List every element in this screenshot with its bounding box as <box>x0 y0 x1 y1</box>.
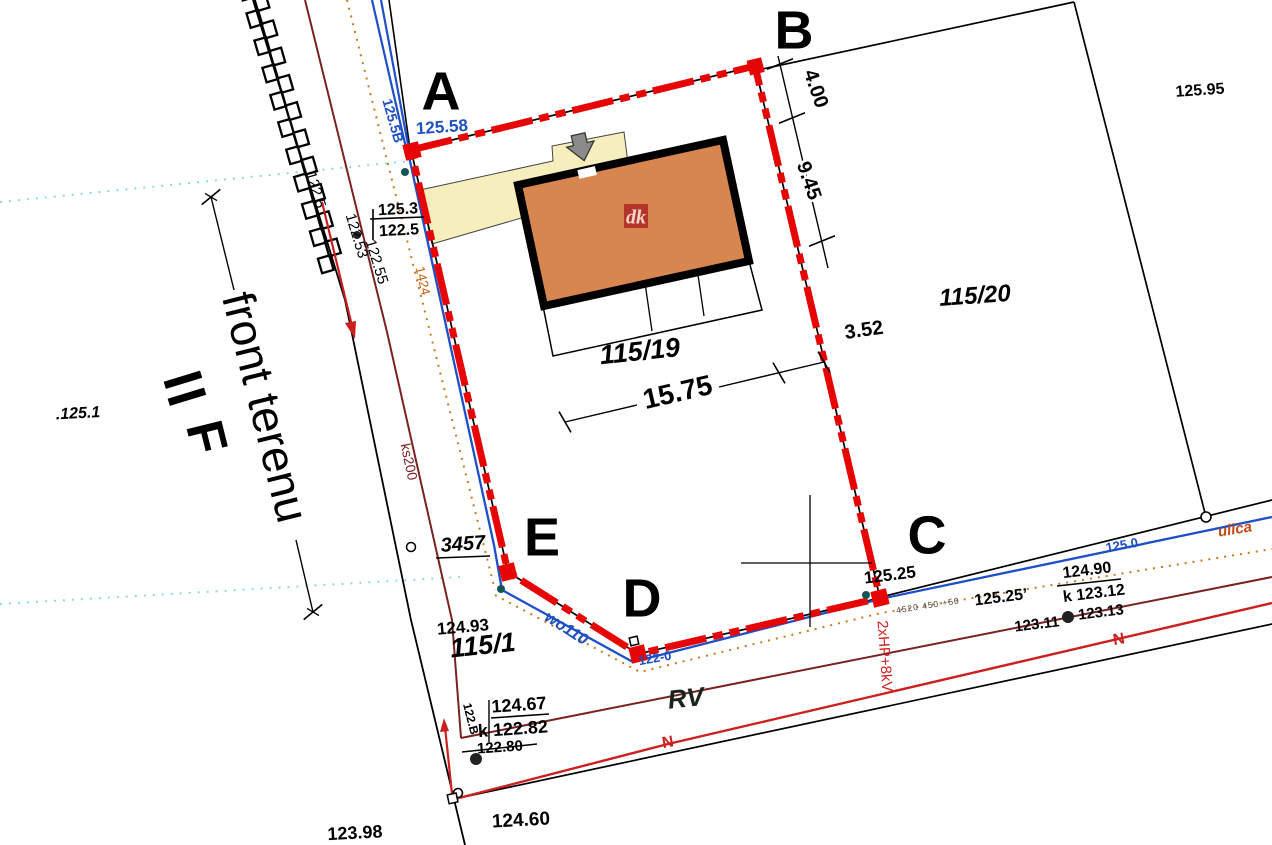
svg-text:124.67: 124.67 <box>491 693 547 717</box>
svg-text:125.95: 125.95 <box>1175 81 1225 101</box>
svg-text:D: D <box>623 568 662 628</box>
svg-text:B: B <box>775 0 814 60</box>
svg-text:124.60: 124.60 <box>491 809 550 833</box>
svg-text:.125.1: .125.1 <box>55 404 100 423</box>
svg-text:123.98: 123.98 <box>327 821 383 844</box>
svg-text:C: C <box>908 505 947 565</box>
svg-text:125.58: 125.58 <box>415 116 468 139</box>
svg-text:115/20: 115/20 <box>938 280 1012 312</box>
svg-text:E: E <box>524 507 560 567</box>
svg-text:dk: dk <box>626 207 646 229</box>
svg-text:122.80: 122.80 <box>476 737 523 757</box>
svg-text:125.3: 125.3 <box>378 200 419 219</box>
svg-text:A: A <box>422 61 461 121</box>
svg-text:3457: 3457 <box>440 532 487 557</box>
svg-text:RV: RV <box>666 681 708 715</box>
svg-text:122.5: 122.5 <box>379 221 420 240</box>
